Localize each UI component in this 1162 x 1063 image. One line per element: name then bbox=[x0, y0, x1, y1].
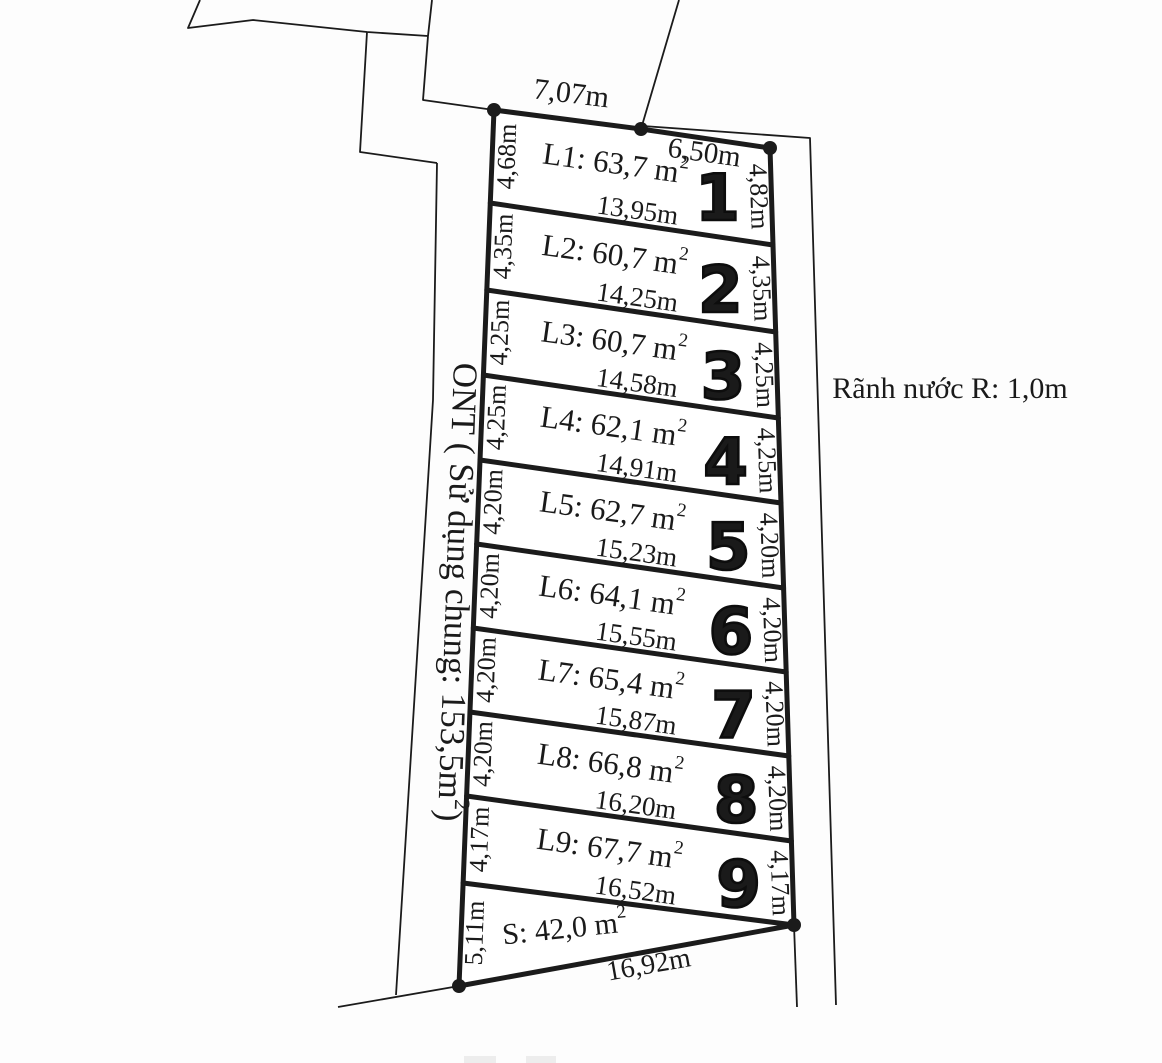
survey-point bbox=[452, 979, 466, 993]
lot-left-length-label: 4,35m bbox=[487, 213, 518, 280]
survey-point bbox=[487, 103, 501, 117]
lot-right-length-label: 4,17m bbox=[765, 850, 796, 917]
lot-left-length-label: 4,25m bbox=[481, 384, 512, 451]
lot-number: 3 bbox=[701, 341, 746, 415]
cutoff-text-fragment bbox=[526, 1056, 556, 1063]
survey-point bbox=[787, 918, 801, 932]
lot-number: 8 bbox=[714, 764, 759, 838]
lot-right-length-label: 4,82m bbox=[743, 163, 774, 230]
lot-right-length-label: 4,25m bbox=[752, 427, 783, 494]
lot-right-length-label: 4,20m bbox=[762, 765, 793, 832]
s-lot-left-length-label: 5,11m bbox=[459, 900, 490, 966]
lot-number: 9 bbox=[716, 849, 761, 923]
lot-number: 7 bbox=[711, 680, 756, 754]
drain-note: Rãnh nước R: 1,0m bbox=[832, 372, 1067, 405]
lot-number: 5 bbox=[706, 511, 751, 585]
lot-right-length-label: 4,35m bbox=[746, 255, 777, 322]
lot-number: 6 bbox=[709, 596, 754, 670]
survey-point bbox=[634, 122, 648, 136]
lot-right-length-label: 4,25m bbox=[749, 342, 780, 409]
lot-number: 2 bbox=[698, 254, 743, 328]
lot-right-length-label: 4,20m bbox=[754, 512, 785, 579]
lot-number: 1 bbox=[695, 162, 740, 236]
survey-drawing: L1: 63,7 m213,95m4,68m4,82m1L2: 60,7 m21… bbox=[0, 0, 1162, 1063]
lot-left-length-label: 4,68m bbox=[491, 123, 522, 190]
lot-left-length-label: 4,25m bbox=[484, 299, 515, 366]
lot-right-length-label: 4,20m bbox=[759, 681, 790, 748]
cutoff-text-fragment bbox=[464, 1056, 496, 1063]
lot-number: 4 bbox=[703, 426, 748, 500]
lot-right-length-label: 4,20m bbox=[757, 597, 788, 664]
plot-diagram: L1: 63,7 m213,95m4,68m4,82m1L2: 60,7 m21… bbox=[0, 0, 1162, 1063]
survey-point bbox=[763, 141, 777, 155]
